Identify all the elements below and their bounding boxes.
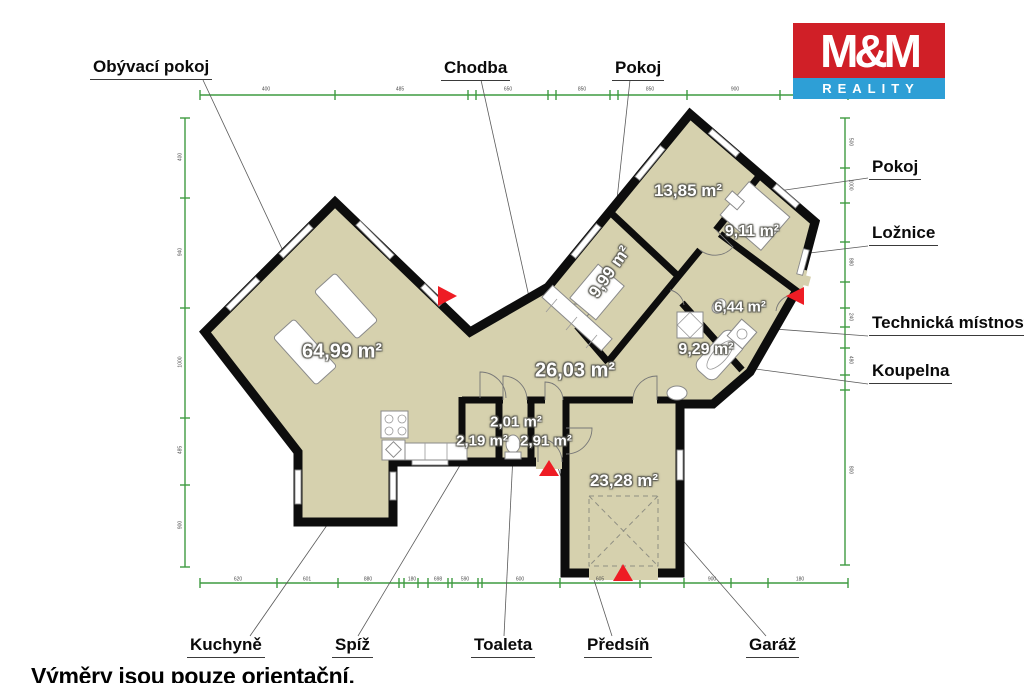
area-loznice: 9,11 m² <box>725 223 779 241</box>
area-technicka-mistnost: 6,44 m² <box>714 299 766 316</box>
dimension-value: 400 <box>179 153 184 161</box>
dimension-value: 1000 <box>179 356 184 367</box>
shower-icon <box>677 312 703 338</box>
dimension-value: 900 <box>708 578 716 583</box>
label-obyvaci-pokoj: Obývací pokoj <box>90 57 212 80</box>
area-predsin: 2,91 m² <box>520 433 572 450</box>
dimension-value: 650 <box>504 88 512 93</box>
entrance-arrow-icon <box>438 286 457 306</box>
label-technicka-mistnost: Technická místnost <box>869 313 1024 336</box>
dimension-value: 900 <box>179 521 184 529</box>
mm-reality-tagline: REALITY <box>793 78 945 99</box>
dimension-value: 485 <box>396 88 404 93</box>
label-pokoj-right: Pokoj <box>869 157 921 180</box>
dimension-value: 590 <box>461 578 469 583</box>
dimension-value: 601 <box>303 578 311 583</box>
dimension-value: 800 <box>848 466 853 474</box>
dimension-value: 600 <box>516 578 524 583</box>
label-kuchyne: Kuchyně <box>187 635 265 658</box>
dimension-value: 698 <box>434 578 442 583</box>
label-garaz: Garáž <box>746 635 799 658</box>
area-chodba: 26,03 m² <box>535 360 615 383</box>
label-spiz: Spíž <box>332 635 373 658</box>
area-koupelna: 9,29 m² <box>678 341 733 359</box>
floorplan-page: Obývací pokoj Chodba Pokoj Pokoj Ložnice… <box>0 0 1024 683</box>
area-garaz: 23,28 m² <box>590 471 658 491</box>
dimension-value: 480 <box>848 356 853 364</box>
dimension-value: 240 <box>848 313 853 321</box>
dimension-value: 880 <box>848 258 853 266</box>
dimension-value: 900 <box>731 88 739 93</box>
washbasin-icon <box>667 386 687 400</box>
label-loznice: Ložnice <box>869 223 938 246</box>
dimension-value: 180 <box>408 578 416 583</box>
dimension-value: 605 <box>596 578 604 583</box>
dimension-value: 180 <box>796 578 804 583</box>
dimension-value: 880 <box>364 578 372 583</box>
dimension-value: 620 <box>234 578 242 583</box>
logo-name: M&M <box>820 24 918 78</box>
label-predsin: Předsíň <box>584 635 652 658</box>
area-pokoj-right: 13,85 m² <box>654 181 722 201</box>
dimension-value: 1000 <box>848 179 853 190</box>
label-toaleta: Toaleta <box>471 635 535 658</box>
dimension-value: 850 <box>578 88 586 93</box>
floorplan-drawing <box>0 0 1024 683</box>
dimension-value: 850 <box>646 88 654 93</box>
area-spiz: 2,19 m² <box>456 433 508 450</box>
area-toaleta: 2,01 m² <box>490 414 542 431</box>
footnote: Výměry jsou pouze orientační. <box>31 663 355 683</box>
mm-reality-logo: M&M <box>793 23 945 78</box>
dimension-value: 485 <box>179 446 184 454</box>
dimension-value: 500 <box>848 138 853 146</box>
dimension-value: 400 <box>262 88 270 93</box>
label-pokoj-top: Pokoj <box>612 58 664 81</box>
logo-tagline: REALITY <box>822 81 920 96</box>
stove-icon <box>381 411 408 438</box>
area-obyvaci-pokoj: 64,99 m² <box>302 341 382 364</box>
dimension-value: 940 <box>179 248 184 256</box>
label-chodba: Chodba <box>441 58 510 81</box>
label-koupelna: Koupelna <box>869 361 952 384</box>
